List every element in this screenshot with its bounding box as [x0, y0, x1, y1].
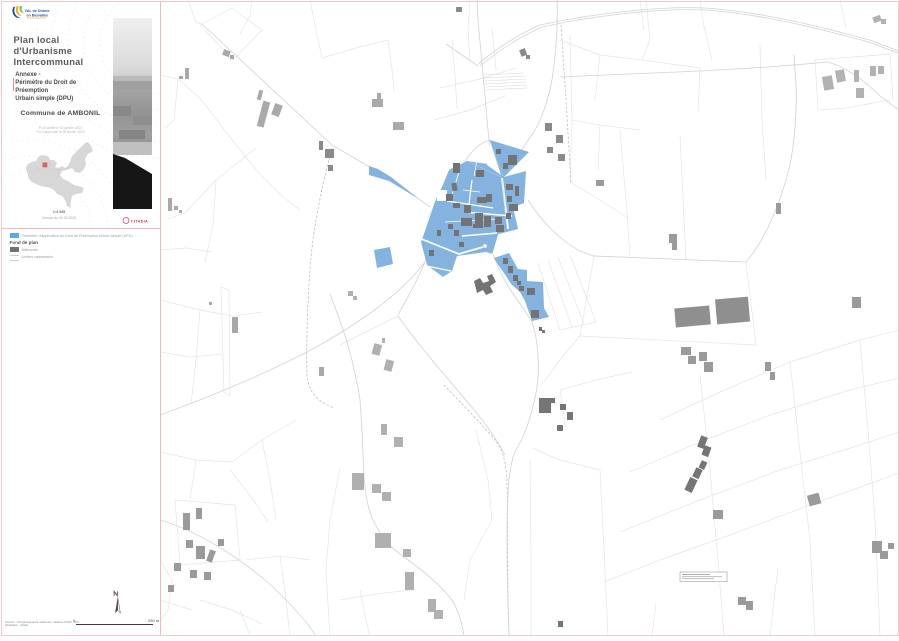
svg-text:VAL de Drôme: VAL de Drôme	[25, 9, 50, 13]
svg-text:en Biovallée: en Biovallée	[27, 14, 49, 18]
svg-text:CITADIA: CITADIA	[131, 220, 148, 224]
